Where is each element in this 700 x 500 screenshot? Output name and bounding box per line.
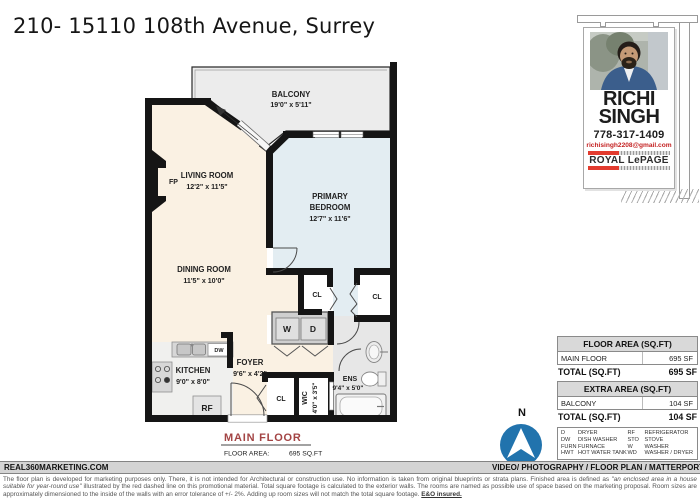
sign-ground-hatch (621, 189, 699, 203)
table-row: BALCONY 104 SF (558, 397, 697, 409)
footer-website: REAL360MARKETING.COM (4, 463, 108, 472)
legend-column-left: DDRYER DWDISH WASHER FURNFURNACE HWTHOT … (561, 430, 628, 457)
sign-board: RICHI SINGH 778-317-1409 richisingh2208@… (583, 27, 675, 189)
row-label: BALCONY (558, 397, 643, 409)
legend-term: WASHER (645, 444, 669, 451)
compass-north-label: N (503, 407, 541, 419)
legend-abbr: HWT (561, 450, 578, 457)
extra-area-total: TOTAL (SQ.FT) 104 SF (557, 410, 698, 422)
extra-area-table-header: EXTRA AREA (SQ.FT) (558, 382, 697, 397)
agent-phone: 778-317-1409 (594, 129, 665, 141)
toilet (362, 372, 379, 386)
brokerage-bar-bottom (588, 166, 670, 170)
sign-post (679, 15, 690, 199)
legend-abbr: FURN (561, 444, 578, 451)
floor-area-total: TOTAL (SQ.FT) 695 SF (557, 365, 698, 381)
disclaimer-eo-insured: E&O insured. (421, 491, 461, 498)
dining-room-dims: 11'5" x 10'0" (183, 277, 224, 285)
balcony-label: BALCONY (272, 90, 311, 99)
kitchen-dims: 9'0" x 8'0" (176, 378, 210, 386)
disclaimer-part2: illustrated by the red dashed line on th… (3, 483, 697, 497)
total-value: 104 SF (669, 412, 697, 422)
wic-dims: 4'0" x 3'5" (312, 383, 319, 414)
agent-photo (590, 32, 668, 90)
legend-abbr: W (628, 444, 645, 451)
agent-email: richisingh2208@gmail.com (586, 142, 671, 149)
fridge-label: RF (201, 403, 212, 413)
total-value: 695 SF (669, 367, 697, 377)
legend-abbr: D (561, 430, 578, 437)
legend-term: DISH WASHER (578, 437, 617, 444)
row-value: 695 SF (643, 352, 697, 364)
kitchen-label: KITCHEN (176, 366, 211, 375)
legend-abbr: STO (628, 437, 645, 444)
stove (152, 362, 172, 392)
brokerage-name: ROYAL LePAGE (588, 155, 670, 167)
closet-label-3: CL (276, 396, 286, 403)
legend-term: HOT WATER TANK (578, 450, 627, 457)
dryer-label: D (310, 324, 316, 334)
sink (369, 345, 379, 359)
entry-threshold (228, 415, 267, 422)
foyer-label: FOYER (237, 358, 264, 367)
plan-caption: MAIN FLOOR FLOOR AREA: 695 SQ.FT (221, 432, 322, 458)
agent-last-name: SINGH (599, 108, 660, 126)
sign-crossbar (577, 15, 698, 23)
living-room-label: LIVING ROOM (181, 171, 233, 180)
ensuite-dims: 9'4" x 5'0" (333, 385, 364, 392)
legend-abbr: WD (628, 450, 645, 457)
windows (313, 132, 363, 138)
floor-name: MAIN FLOOR (224, 432, 302, 444)
extra-area-table: EXTRA AREA (SQ.FT) BALCONY 104 SF (557, 381, 698, 410)
floor-area-label: FLOOR AREA: (224, 451, 269, 458)
ensuite-label: ENS (343, 376, 358, 383)
table-row: MAIN FLOOR 695 SF (558, 352, 697, 364)
compass-icon (500, 424, 542, 466)
primary-bedroom-dims: 12'7" x 11'6" (309, 215, 350, 223)
dishwasher-label: DW (214, 348, 224, 354)
legend-term: WASHER / DRYER (645, 450, 694, 457)
foyer-dims: 9'6" x 4'2" (233, 370, 267, 378)
footer-bar: REAL360MARKETING.COM VIDEO/ PHOTOGRAPHY … (0, 461, 700, 474)
brokerage-logo: ROYAL LePAGE (588, 151, 670, 171)
total-label: TOTAL (SQ.FT) (558, 367, 621, 377)
total-label: TOTAL (SQ.FT) (558, 412, 621, 422)
legend-abbr: DW (561, 437, 578, 444)
legend-abbr: RF (628, 430, 645, 437)
legend-term: FURNACE (578, 444, 605, 451)
legend-term: REFRIGERATOR (645, 430, 689, 437)
legend-term: DRYER (578, 430, 597, 437)
abbreviation-legend: DDRYER DWDISH WASHER FURNFURNACE HWTHOT … (557, 427, 698, 460)
floor-area-table-header: FLOOR AREA (SQ.FT) (558, 337, 697, 352)
closet-label-1: CL (312, 292, 322, 299)
balcony-dims: 19'0" x 5'11" (270, 101, 311, 109)
fireplace-label: FP (169, 179, 178, 186)
disclaimer-part1: The floor plan is developed for marketin… (3, 476, 611, 483)
living-room-dims: 12'2" x 11'5" (186, 183, 227, 191)
area-tables: FLOOR AREA (SQ.FT) MAIN FLOOR 695 SF TOT… (557, 336, 698, 422)
floor-area-table: FLOOR AREA (SQ.FT) MAIN FLOOR 695 SF (557, 336, 698, 365)
closet-label-2: CL (372, 294, 382, 301)
legend-term: STOVE (645, 437, 664, 444)
washer-label: W (283, 324, 292, 334)
row-label: MAIN FLOOR (558, 352, 643, 364)
primary-bedroom-label-1: PRIMARY (312, 192, 348, 201)
agent-sign: RICHI SINGH 778-317-1409 richisingh2208@… (575, 8, 700, 220)
wic-label: WIC (302, 391, 309, 405)
primary-bedroom-label-2: BEDROOM (310, 203, 351, 212)
floor-area-value: 695 SQ.FT (289, 451, 322, 458)
footer-services: VIDEO/ PHOTOGRAPHY / FLOOR PLAN / MATTER… (492, 463, 700, 472)
disclaimer-text: The floor plan is developed for marketin… (3, 476, 697, 498)
dining-room-label: DINING ROOM (177, 265, 231, 274)
legend-column-right: RFREFRIGERATOR STOSTOVE WWASHER WDWASHER… (628, 430, 695, 457)
row-value: 104 SF (643, 397, 697, 409)
